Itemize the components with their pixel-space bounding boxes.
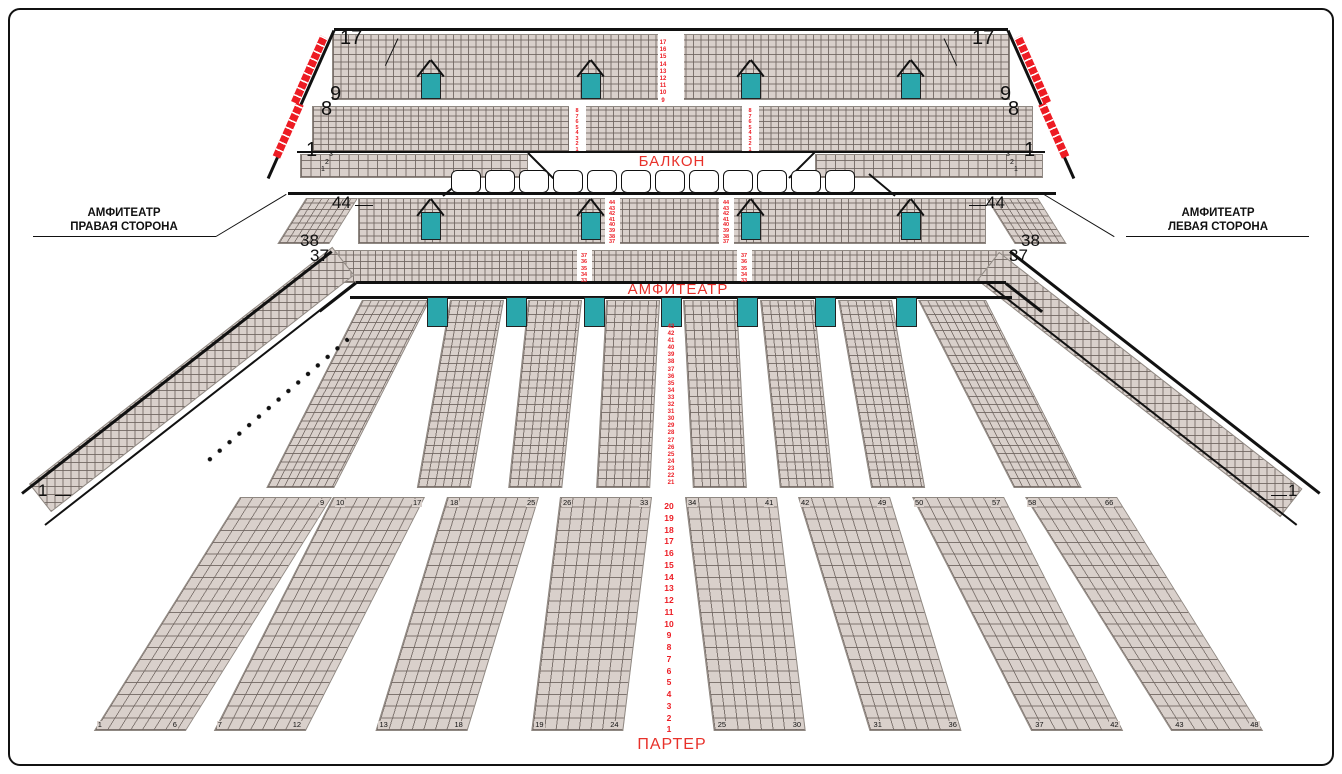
bowl-door (661, 297, 682, 327)
parterre-block-7-seat-number: 50 (914, 499, 924, 507)
bowl-block-3[interactable] (596, 300, 660, 488)
balcony-door (901, 73, 921, 99)
amphi-upper-door (581, 212, 601, 240)
strip-row-3-right: 3 (1006, 151, 1010, 158)
parterre-block-1-seat-number: 1 (97, 721, 103, 729)
parterre-block-2-seat-number: 7 (217, 721, 223, 729)
row-marker-37-left: 37 (310, 247, 329, 264)
balcony-lower-row-numbers: 8 7 6 5 4 3 2 1 (748, 109, 751, 153)
parterre-block-2-seat-number: 10 (335, 499, 345, 507)
row-marker-1-left: 1 (306, 140, 317, 160)
balcony-tier-divider (297, 151, 1045, 153)
left-side-callout: АМФИТЕАТР ЛЕВАЯ СТОРОНА (1168, 206, 1268, 235)
balcony-door (581, 73, 601, 99)
loge-box[interactable] (723, 170, 753, 193)
amphi-upper-door (741, 212, 761, 240)
balcony-door (741, 73, 761, 99)
parterre-block-5-seat-number: 30 (792, 721, 802, 729)
tick-44-left (355, 205, 373, 206)
amphi-upper-door (421, 212, 441, 240)
balcony-door (421, 73, 441, 99)
amphi-bowl-row-numbers: 43 42 41 40 39 38 37 36 35 34 33 32 31 3… (668, 324, 675, 487)
parterre-block-7-seat-number: 42 (1109, 721, 1119, 729)
parterre-block-7-seat-number: 37 (1034, 721, 1044, 729)
parterre-block-8-seat-number: 66 (1104, 499, 1114, 507)
balcony-top-edge (334, 28, 1008, 31)
parterre-block-1-seat-number: 6 (172, 721, 178, 729)
bowl-door (427, 297, 448, 327)
parterre-block-1-seat-number: 9 (319, 499, 325, 507)
tick-1-wing-left (55, 495, 71, 496)
strip-row-2-right: 2 (1010, 159, 1014, 166)
loge-box[interactable] (757, 170, 787, 193)
amphi-mid-row-numbers: 37 36 35 34 33 (741, 253, 747, 284)
balcony-label: БАЛКОН (639, 153, 706, 170)
left-side-callout-line1: АМФИТЕАТР (1168, 206, 1268, 220)
strip-row-1-right: 1 (1014, 166, 1018, 173)
bowl-door (737, 297, 758, 327)
parterre-block-4-seat-number: 26 (562, 499, 572, 507)
loge-box[interactable] (791, 170, 821, 193)
bowl-door (506, 297, 527, 327)
parterre-block-6-seat-number: 31 (873, 721, 883, 729)
bowl-door (896, 297, 917, 327)
right-side-callout-line2: ПРАВАЯ СТОРОНА (70, 220, 178, 234)
row-marker-1-wing-left: 1 (38, 482, 47, 499)
loge-box[interactable] (621, 170, 651, 193)
amphi-mid-seats[interactable] (330, 250, 1012, 283)
strip-row-1-left: 1 (321, 166, 325, 173)
loge-box[interactable] (451, 170, 481, 193)
parterre-block-4-seat-number: 19 (534, 721, 544, 729)
strip-row-3-left: 3 (329, 151, 333, 158)
parterre-label: ПАРТЕР (637, 736, 706, 754)
amphi-upper-door (901, 212, 921, 240)
tick-44-right (969, 205, 987, 206)
seat-map: БАЛКОН АМФИТЕАТР ПАРТЕР АМФИТЕАТР ПРАВАЯ… (0, 0, 1342, 774)
row-marker-17-right: 17 (972, 28, 994, 48)
amphi-upper-row-numbers: 44 43 42 41 40 39 38 37 (723, 201, 729, 246)
row-marker-17-left: 17 (340, 28, 362, 48)
row-marker-44-left: 44 (332, 194, 351, 211)
parterre-block-8-seat-number: 43 (1174, 721, 1184, 729)
parterre-block-7-seat-number: 57 (991, 499, 1001, 507)
row-marker-8-left: 8 (321, 99, 332, 119)
parterre-block-4-seat-number: 24 (609, 721, 619, 729)
bowl-door (584, 297, 605, 327)
parterre-block-3-seat-number: 25 (526, 499, 536, 507)
parterre-block-2-seat-number: 12 (292, 721, 302, 729)
loge-box[interactable] (485, 170, 515, 193)
row-marker-1-right: 1 (1024, 140, 1035, 160)
parterre-row-numbers: 20 19 18 17 16 15 14 13 12 11 10 9 8 7 6… (664, 501, 673, 736)
balcony-lower-seats[interactable] (312, 106, 1033, 152)
parterre-block-8-seat-number: 58 (1027, 499, 1037, 507)
right-side-callout: АМФИТЕАТР ПРАВАЯ СТОРОНА (70, 206, 178, 235)
parterre-block-6-seat-number: 42 (800, 499, 810, 507)
parterre-block-4-seat-number: 33 (639, 499, 649, 507)
row-marker-1-wing-right: 1 (1288, 482, 1297, 499)
parterre-block-5-seat-number: 25 (717, 721, 727, 729)
bowl-block-4[interactable] (683, 300, 747, 488)
callout-right-underline (1126, 236, 1309, 237)
parterre-block-8-seat-number: 48 (1249, 721, 1259, 729)
loge-box[interactable] (655, 170, 685, 193)
strip-row-2-left: 2 (325, 159, 329, 166)
row-marker-8-right: 8 (1008, 99, 1019, 119)
amphi-upper-row-numbers: 44 43 42 41 40 39 38 37 (609, 201, 615, 246)
loge-box[interactable] (553, 170, 583, 193)
parterre-block-3-seat-number: 18 (449, 499, 459, 507)
parterre-block-3-seat-number: 13 (378, 721, 388, 729)
loge-box[interactable] (519, 170, 549, 193)
parterre-block-3-seat-number: 18 (453, 721, 463, 729)
balcony-upper-row-numbers: 17 16 15 14 13 12 11 10 9 (660, 40, 667, 105)
row-marker-44-right: 44 (986, 194, 1005, 211)
row-marker-37-right: 37 (1009, 247, 1028, 264)
tick-1-wing-right (1271, 495, 1287, 496)
parterre-block-2-seat-number: 17 (412, 499, 422, 507)
left-side-callout-line2: ЛЕВАЯ СТОРОНА (1168, 220, 1268, 234)
balcony-lower-row-numbers: 8 7 6 5 4 3 2 1 (575, 109, 578, 153)
loge-box[interactable] (825, 170, 855, 193)
loge-box[interactable] (587, 170, 617, 193)
bowl-door (815, 297, 836, 327)
loge-box[interactable] (689, 170, 719, 193)
amphi-upper-seats[interactable] (358, 198, 986, 244)
parterre-block-6-seat-number: 36 (948, 721, 958, 729)
amphi-band-top (356, 281, 1006, 284)
amphi-mid-row-numbers: 37 36 35 34 33 (581, 253, 587, 284)
right-side-callout-line1: АМФИТЕАТР (70, 206, 178, 220)
callout-left-underline (33, 236, 216, 237)
parterre-block-5-seat-number: 34 (687, 499, 697, 507)
parterre-block-5-seat-number: 41 (764, 499, 774, 507)
parterre-block-6-seat-number: 49 (877, 499, 887, 507)
